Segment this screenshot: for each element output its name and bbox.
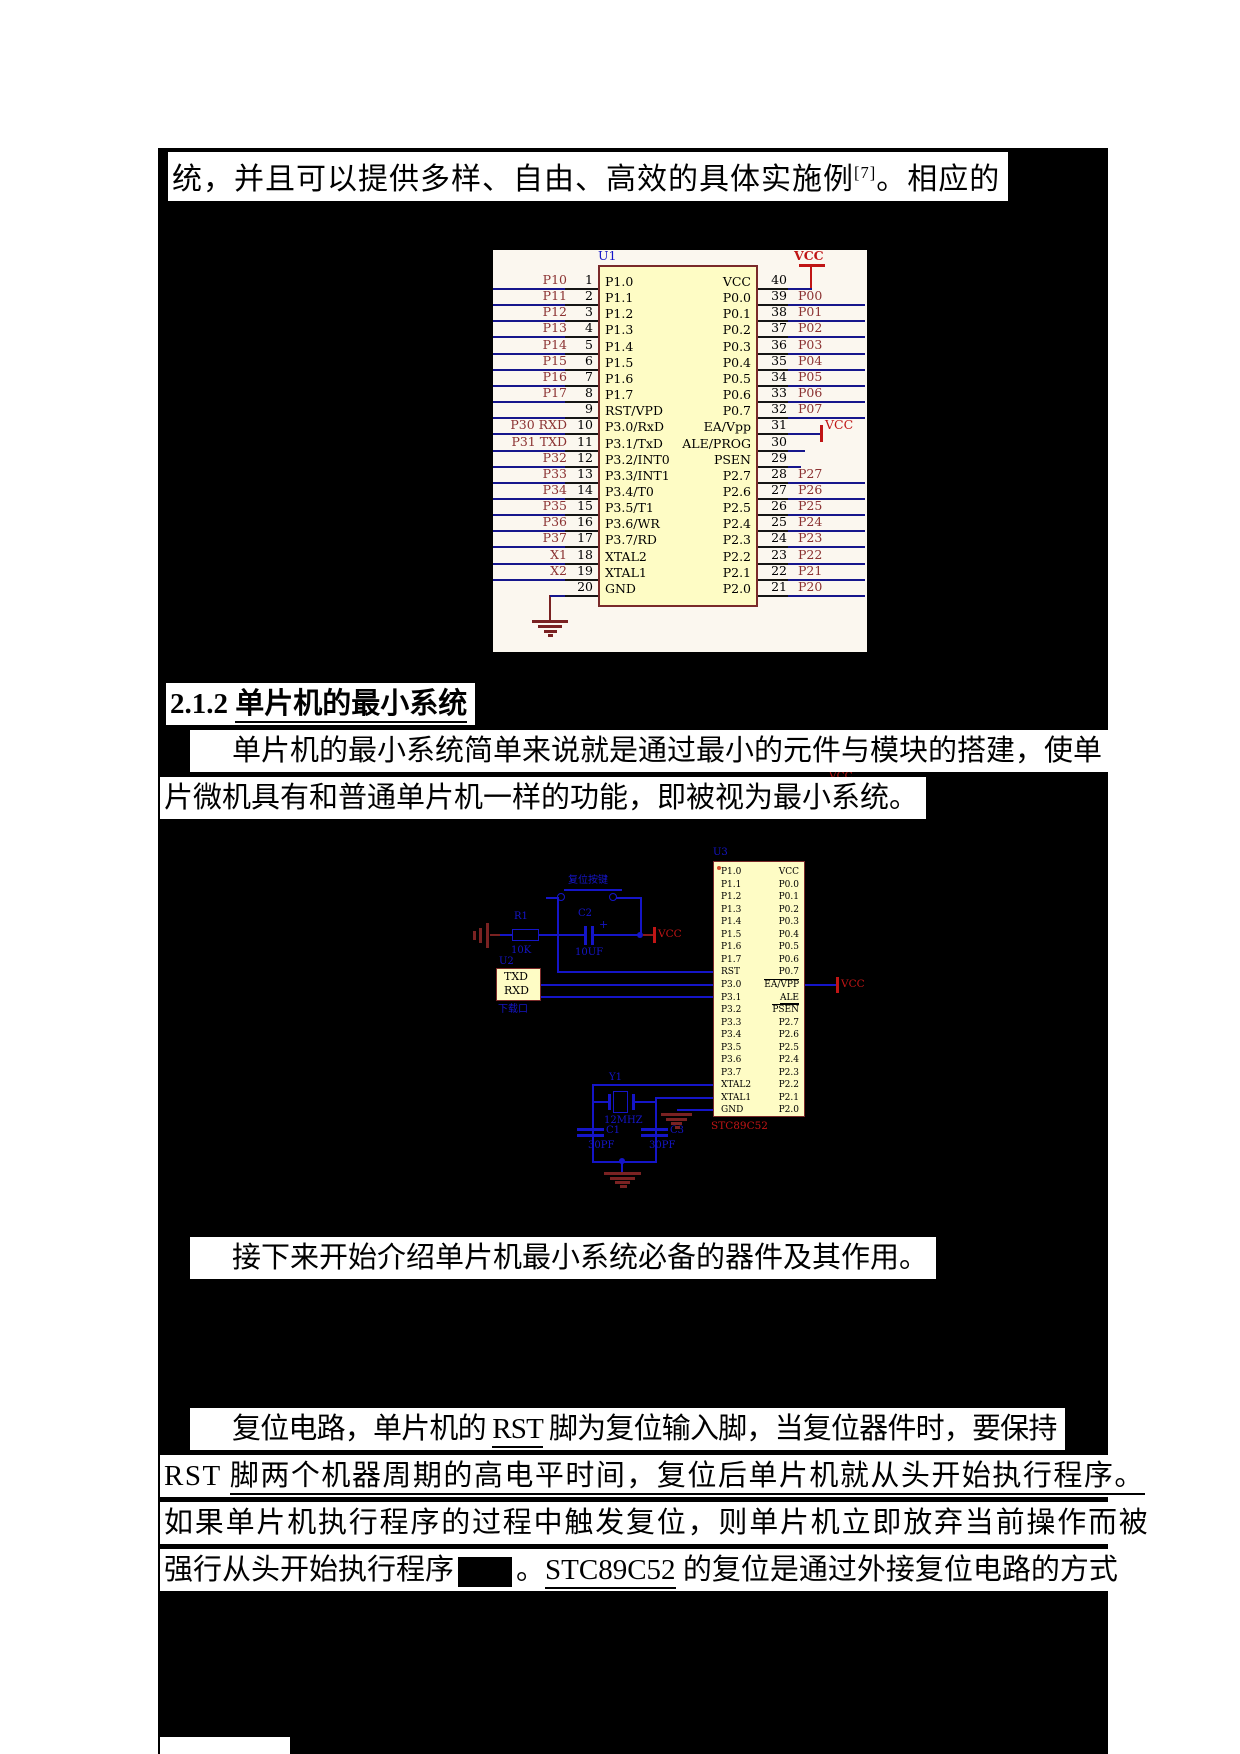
pin-name: P0.7: [730, 966, 799, 978]
pin-number: 7: [571, 369, 593, 384]
pin-name: P2.3: [730, 1067, 799, 1079]
pin-number: 30: [761, 434, 787, 449]
pin-net-label: X1: [495, 547, 567, 562]
pin-name: P2.2: [730, 1079, 799, 1091]
pin-net-label: P16: [495, 369, 567, 384]
pin-name-text: ALE: [780, 993, 799, 1004]
wire: [640, 897, 642, 936]
text-segment: 复位电路，单片机的: [232, 1413, 492, 1445]
pin-number: 29: [761, 450, 787, 465]
c2-ref-label: C2: [578, 908, 592, 920]
paragraph-line: RST 脚两个机器周期的高电平时间，复位后单片机就从头开始执行程序。: [160, 1455, 1153, 1497]
wire: [805, 984, 836, 986]
pin-name: P0.3: [643, 339, 751, 354]
paragraph-line: 强行从头开始执行程序。STC89C52 的复位是通过外接复位电路的方式: [160, 1549, 1126, 1591]
battery-icon: [490, 934, 500, 936]
pin-name: P1.2: [605, 306, 633, 321]
pin-name-text: P0.1: [779, 892, 799, 902]
pin-name-text: EA/VPP: [764, 979, 799, 990]
pin-name: P2.5: [643, 500, 751, 515]
vcc-bar-icon: [820, 425, 823, 442]
pin-name: P2.7: [730, 1017, 799, 1029]
resistor-icon: [512, 929, 539, 941]
pin-number: 25: [761, 514, 787, 529]
pin-stub: [565, 595, 598, 597]
battery-icon: [473, 931, 476, 940]
pin-name: P0.5: [643, 371, 751, 386]
pin-name-text: P0.3: [779, 917, 799, 927]
pin-net-label: P05: [798, 369, 846, 384]
pin-name: XTAL1: [605, 565, 647, 580]
pin-name: P0.0: [730, 879, 799, 891]
pin-net-label: P37: [495, 530, 567, 545]
pin-number: 40: [761, 272, 787, 287]
wire: [643, 934, 653, 936]
redaction-box: [458, 1557, 512, 1587]
text-segment: 统，并且可以提供多样、自由、高效的具体实施例: [172, 163, 854, 196]
pin-number: 17: [571, 530, 593, 545]
underlined-term: STC89C52: [545, 1554, 676, 1589]
pin-number: 33: [761, 385, 787, 400]
pin-net-label: P34: [495, 482, 567, 497]
pin-net-label: P02: [798, 320, 846, 335]
vcc-power-icon: [810, 266, 812, 288]
pin-net-label: P06: [798, 385, 846, 400]
pin-net-label: P31 TXD: [495, 434, 567, 449]
ground-icon: [532, 620, 568, 623]
pin-name: P2.1: [643, 565, 751, 580]
wire: [541, 984, 713, 986]
pin-number: 13: [571, 466, 593, 481]
wire: [594, 934, 640, 936]
vcc-power-icon: [799, 264, 825, 267]
pin-name: P2.6: [730, 1029, 799, 1041]
pin-net-label: P11: [495, 288, 567, 303]
pin-name-text: P0.6: [779, 955, 799, 965]
paragraph-line: 复位电路，单片机的 RST 脚为复位输入脚，当复位器件时，要保持: [190, 1408, 1065, 1450]
pin-name: PSEN: [643, 452, 751, 467]
pin-name: ALE/PROG: [643, 436, 751, 451]
pin-name-text: P2.1: [779, 1093, 799, 1103]
pin-number: 32: [761, 401, 787, 416]
ground-icon: [661, 1113, 692, 1116]
capacitor-icon: [577, 1134, 604, 1137]
pin-name: P0.3: [730, 916, 799, 928]
pin-net-label: P25: [798, 498, 846, 513]
pin-net-label: P21: [798, 563, 846, 578]
battery-icon: [479, 928, 482, 943]
pin-number: 14: [571, 482, 593, 497]
pin-name: P1.5: [605, 355, 633, 370]
ground-icon: [538, 625, 562, 628]
u2-pin-label: RXD: [504, 985, 529, 997]
wire: [592, 1101, 608, 1103]
pin-name: P2.5: [730, 1042, 799, 1054]
pin-number: 1: [571, 272, 593, 287]
pin-name-text: P2.7: [779, 1018, 799, 1028]
pin-number: 3: [571, 304, 593, 319]
pin-name: P0.5: [730, 941, 799, 953]
wire: [557, 971, 713, 973]
pin-name: P1.6: [605, 371, 633, 386]
wire: [655, 1097, 713, 1099]
paragraph-line: 接下来开始介绍单片机最小系统必备的器件及其作用。: [190, 1237, 936, 1279]
pin-net-label: P27: [798, 466, 846, 481]
pin-net-label: X2: [495, 563, 567, 578]
wire: [616, 897, 640, 899]
capacitor-icon: [577, 1128, 604, 1131]
pin-net-label: P10: [495, 272, 567, 287]
capacitor-icon: [641, 1128, 668, 1131]
pin-name: GND: [605, 581, 636, 596]
pin-number: 37: [761, 320, 787, 335]
ground-icon: [610, 1177, 635, 1180]
chip-part-number: STC89C52: [711, 1120, 768, 1132]
page: { "document": { "top_line": {"pre": "统，并…: [0, 0, 1240, 1754]
pin-name: P1.3: [605, 322, 633, 337]
ground-icon: [675, 1126, 680, 1129]
crystal-icon: [613, 1091, 628, 1113]
wire: [677, 1109, 713, 1111]
pin-net-label: P01: [798, 304, 846, 319]
c2-polarity-label: +: [599, 919, 608, 931]
paragraph-line: 单片机的最小系统简单来说就是通过最小的元件与模块的搭建，使单: [190, 730, 1110, 772]
pin-number: 9: [571, 401, 593, 416]
vcc-bar-icon: [836, 977, 839, 993]
pin-name: P0.6: [643, 387, 751, 402]
wire: [559, 934, 584, 936]
pin-number: 21: [761, 579, 787, 594]
pin-number: 18: [571, 547, 593, 562]
pin-net-label: P14: [495, 337, 567, 352]
pin-number: 4: [571, 320, 593, 335]
pin-name: P2.4: [730, 1054, 799, 1066]
heading-title: 单片机的最小系统: [235, 688, 467, 723]
pin-name: P2.3: [643, 532, 751, 547]
pin-net-label: P35: [495, 498, 567, 513]
text-segment: RST: [164, 1460, 230, 1492]
pin-net-label: P03: [798, 337, 846, 352]
pin-name: EA/Vpp: [643, 419, 751, 434]
pin-name-text: P2.6: [779, 1030, 799, 1040]
pin-name-text: P2.3: [779, 1068, 799, 1078]
pin-number: 27: [761, 482, 787, 497]
pin-net-label: P17: [495, 385, 567, 400]
pin-number: 6: [571, 353, 593, 368]
pin-net-label: P20: [798, 579, 846, 594]
ground-icon: [671, 1122, 682, 1125]
pin-number: 31: [761, 417, 787, 432]
ground-icon: [544, 630, 557, 633]
capacitor-icon: [641, 1134, 668, 1137]
citation-superscript: [7]: [854, 163, 876, 182]
wire: [539, 934, 557, 936]
pin-net-label: P07: [798, 401, 846, 416]
pin-number: 5: [571, 337, 593, 352]
c2-value-label: 10UF: [575, 947, 603, 959]
pin-number: 24: [761, 530, 787, 545]
wire: [634, 1101, 655, 1103]
wire: [541, 996, 713, 998]
pin-name: P1.1: [605, 290, 633, 305]
pin-name: VCC: [643, 274, 751, 289]
pin-name-text: VCC: [779, 867, 799, 877]
pin-name: P0.4: [730, 929, 799, 941]
pin-name: XTAL2: [605, 549, 647, 564]
c1-ref-label: C1: [606, 1125, 620, 1137]
pin-name: P0.4: [643, 355, 751, 370]
ground-icon: [548, 634, 553, 637]
c3-value-label: 30PF: [649, 1140, 675, 1152]
pin-number: 19: [571, 563, 593, 578]
pin-name: P2.0: [730, 1104, 799, 1116]
schematic-mcu-pinout: U1 VCC VCC P101P1.0VCC40P112P1.1P0.039P0…: [493, 250, 867, 652]
pin-name: P2.7: [643, 468, 751, 483]
pin-net-label: P22: [798, 547, 846, 562]
pin-number: 20: [571, 579, 593, 594]
pin-net-label: P33: [495, 466, 567, 481]
heading-number: 2.1.2: [170, 688, 228, 720]
pin-net-label: P13: [495, 320, 567, 335]
pin-name: P1.7: [605, 387, 633, 402]
text-segment: 。: [516, 1554, 545, 1586]
pin-name-text: P2.0: [779, 1105, 799, 1115]
vcc-power-icon: VCC: [794, 248, 824, 263]
pin-net-label: P24: [798, 514, 846, 529]
chip-designator: U3: [713, 847, 728, 859]
ground-icon: [604, 1172, 641, 1175]
vcc-net-label: VCC: [825, 417, 853, 432]
reset-button-label: 复位按键: [568, 875, 608, 887]
c1-value-label: 30PF: [588, 1140, 614, 1152]
wire: [621, 1161, 623, 1172]
pin-name-text: P2.2: [779, 1080, 799, 1090]
pin-name: ALE: [730, 992, 799, 1004]
pin-net-label: P04: [798, 353, 846, 368]
pin-name: P0.2: [643, 322, 751, 337]
ground-icon: [666, 1118, 687, 1121]
pin-name: EA/VPP: [730, 979, 799, 991]
u2-pin-label: TXD: [504, 971, 528, 983]
pin-name-text: P0.5: [779, 942, 799, 952]
pin-name: P0.7: [643, 403, 751, 418]
pin-name-text: P0.2: [779, 905, 799, 915]
pin-number: 28: [761, 466, 787, 481]
pin-name-text: P0.4: [779, 930, 799, 940]
text-segment: 脚为复位输入脚，当复位器件时，要保持: [543, 1413, 1057, 1445]
pin-name: P2.0: [643, 581, 751, 596]
pin-name: P2.6: [643, 484, 751, 499]
wire: [500, 934, 512, 936]
pin-name-text: P0.0: [779, 880, 799, 890]
underlined-text: 脚两个机器周期的高电平时间，复位后单片机就从头开始执行程序。: [230, 1460, 1145, 1495]
pin-number: 36: [761, 337, 787, 352]
paragraph-line: 如果单片机执行程序的过程中触发复位，则单片机立即放弃当前操作而被: [160, 1502, 1158, 1544]
r1-value-label: 10K: [511, 945, 531, 957]
pin-net-label: P15: [495, 353, 567, 368]
pin-name-text: P2.5: [779, 1043, 799, 1053]
pin-number: 10: [571, 417, 593, 432]
pin-net-label: P30 RXD: [495, 417, 567, 432]
pin-name: P1.0: [605, 274, 633, 289]
r1-ref-label: R1: [514, 911, 528, 923]
clipped-text-line: [160, 1737, 290, 1754]
pin-name: P1.4: [605, 339, 633, 354]
pin-name: P0.1: [643, 306, 751, 321]
pin-number: 34: [761, 369, 787, 384]
pin-name: P0.0: [643, 290, 751, 305]
push-button-icon: [564, 889, 622, 891]
y1-ref-label: Y1: [609, 1072, 622, 1084]
pin-net-label: P26: [798, 482, 846, 497]
text-segment: 。相应的: [876, 163, 1000, 196]
text-segment: 强行从头开始执行程序: [164, 1554, 454, 1586]
pin-name: P2.2: [643, 549, 751, 564]
u2-caption: 下载口: [498, 1004, 528, 1016]
underlined-term: RST: [492, 1413, 542, 1448]
pin-number: 22: [761, 563, 787, 578]
wire: [546, 897, 557, 899]
pin-name: P0.2: [730, 904, 799, 916]
text-segment: 的复位是通过外接复位电路的方式: [676, 1554, 1118, 1586]
pin-number: 8: [571, 385, 593, 400]
ground-icon: [620, 1185, 627, 1188]
pin-net-label: P36: [495, 514, 567, 529]
crystal-icon: [608, 1094, 611, 1110]
ground-icon: [549, 595, 551, 620]
pin-number: 39: [761, 288, 787, 303]
pin-number: 11: [571, 434, 593, 449]
pin-number: 38: [761, 304, 787, 319]
pin-name-text: PSEN: [772, 1004, 799, 1015]
pin-number: 23: [761, 547, 787, 562]
pin-net-label: P32: [495, 450, 567, 465]
paragraph-line: 片微机具有和普通单片机一样的功能，即被视为最小系统。: [160, 777, 926, 819]
battery-icon: [486, 923, 489, 948]
pin-name: P0.1: [730, 891, 799, 903]
pin-name-text: P0.7: [779, 967, 799, 977]
pin-number: 12: [571, 450, 593, 465]
pin-name: P2.4: [643, 516, 751, 531]
pin-net-label: P00: [798, 288, 846, 303]
pin-number: 35: [761, 353, 787, 368]
pin-name-text: P2.4: [779, 1055, 799, 1065]
wire: [592, 1084, 713, 1086]
pin-number: 26: [761, 498, 787, 513]
section-heading: 2.1.2 单片机的最小系统: [166, 683, 475, 725]
vcc-net-label: VCC: [841, 978, 865, 990]
vcc-net-label: VCC: [658, 928, 682, 940]
pin-number: 15: [571, 498, 593, 513]
pin-net-label: P12: [495, 304, 567, 319]
pin-name: P2.1: [730, 1092, 799, 1104]
pin-name: P0.6: [730, 954, 799, 966]
pin-name: PSEN: [730, 1004, 799, 1016]
capacitor-icon: [584, 926, 587, 945]
pin-name: VCC: [730, 866, 799, 878]
top-text-line: 统，并且可以提供多样、自由、高效的具体实施例[7]。相应的: [168, 152, 1008, 201]
pin-number: 16: [571, 514, 593, 529]
pin-net-label: P23: [798, 530, 846, 545]
u2-designator: U2: [499, 956, 514, 968]
chip-designator: U1: [598, 248, 617, 263]
pin-number: 2: [571, 288, 593, 303]
pin-stub: [758, 595, 788, 597]
vcc-bar-icon: [653, 927, 656, 943]
ground-icon: [615, 1181, 630, 1184]
